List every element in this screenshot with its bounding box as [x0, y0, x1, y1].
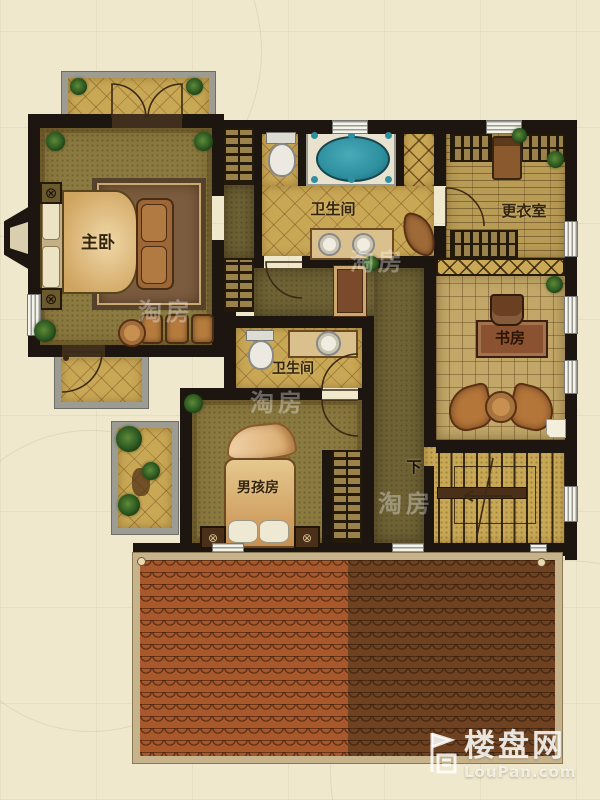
window: [333, 121, 367, 133]
window: [565, 361, 577, 393]
shower-floor: [404, 128, 434, 186]
toilet-bowl: [268, 143, 296, 177]
window: [565, 487, 577, 521]
bench-cushion: [141, 204, 167, 242]
master-sofa: [140, 314, 214, 344]
wall: [224, 312, 236, 400]
sink: [318, 233, 341, 256]
brand-text: 楼盘网 LouPan.com: [464, 730, 576, 781]
hall-closet-bottom: [224, 258, 254, 312]
master-bedroom-label: 主卧: [62, 228, 134, 253]
wall: [212, 114, 224, 196]
vent-symbol: ⊗: [40, 288, 62, 310]
rear-balcony: [55, 352, 148, 408]
tea-table: [485, 391, 517, 423]
plant: [46, 132, 65, 151]
plant: [118, 494, 140, 516]
plant: [546, 276, 563, 293]
roof-tiles-left: [140, 560, 348, 756]
wall: [358, 388, 374, 400]
corridor-floor: [374, 268, 424, 543]
vent-symbol: ⊗: [40, 182, 62, 204]
master-passage-floor: [224, 185, 254, 258]
roof-pin: [137, 557, 146, 566]
hall-closet-top: [224, 128, 254, 185]
wall: [180, 388, 192, 556]
dressing-room-label: 更衣室: [486, 200, 562, 221]
bathroom-main-label: 卫生间: [288, 198, 378, 219]
wall: [105, 345, 224, 357]
closet-band: [436, 258, 565, 276]
wall: [436, 440, 577, 453]
wall: [322, 450, 332, 543]
pillow: [42, 246, 60, 288]
rear-balcony-floor: [61, 358, 142, 402]
study-chair: [490, 294, 524, 326]
tub-deck-dots: [311, 132, 318, 139]
study-label: 书房: [476, 327, 544, 348]
stair-rail-wall: [424, 466, 434, 543]
plant: [512, 128, 527, 143]
window: [565, 222, 577, 256]
wall: [28, 345, 62, 357]
roof-tiles-right: [348, 560, 556, 756]
wall: [424, 268, 436, 447]
plant: [547, 151, 564, 168]
wall: [434, 120, 446, 186]
plant: [142, 462, 160, 480]
plant: [184, 394, 203, 413]
plant: [194, 132, 213, 151]
wall: [298, 128, 306, 186]
sofa-cushion: [191, 314, 214, 344]
french-door-threshold: [112, 114, 182, 128]
wall: [224, 316, 362, 328]
sofa-cushion: [165, 314, 188, 344]
loupan-logo-icon: [424, 730, 460, 776]
bathtub: [316, 136, 390, 182]
plant: [186, 78, 203, 95]
balcony-door-threshold: [62, 345, 105, 357]
stair-handrail: [437, 487, 527, 499]
plant: [70, 78, 87, 95]
nightstand: ⊗: [294, 526, 320, 549]
pillow: [228, 520, 258, 543]
side-table: [118, 319, 146, 347]
plant: [364, 256, 379, 271]
bench-cushion: [141, 246, 167, 284]
brand-name-cn: 楼盘网: [464, 730, 576, 763]
boys-room-label: 男孩房: [226, 477, 290, 497]
plant: [116, 426, 142, 452]
wall: [362, 316, 374, 543]
dressing-wardrobe-3: [450, 230, 518, 258]
pillow: [42, 198, 60, 240]
stairs-down-label: 下: [402, 456, 426, 477]
wall: [254, 256, 264, 268]
plant: [34, 320, 56, 342]
corner-detail: [546, 419, 566, 438]
round-sink: [316, 331, 341, 356]
window: [565, 297, 577, 333]
dressing-wardrobe-1: [450, 134, 492, 162]
wall: [254, 128, 262, 256]
roof-pin: [537, 558, 546, 567]
pillow: [259, 520, 289, 543]
hallway-rug: [334, 266, 366, 316]
sink: [352, 233, 375, 256]
bathroom-second-label: 卫生间: [250, 358, 336, 378]
boys-wardrobe: [332, 450, 362, 543]
wall: [28, 114, 112, 128]
floorplan-canvas: ⊗ ⊗ ⊗ ⊗: [0, 0, 600, 800]
brand-name-en: LouPan.com: [464, 763, 576, 781]
brand-watermark: 楼盘网 LouPan.com: [424, 730, 576, 781]
wall: [396, 128, 404, 186]
